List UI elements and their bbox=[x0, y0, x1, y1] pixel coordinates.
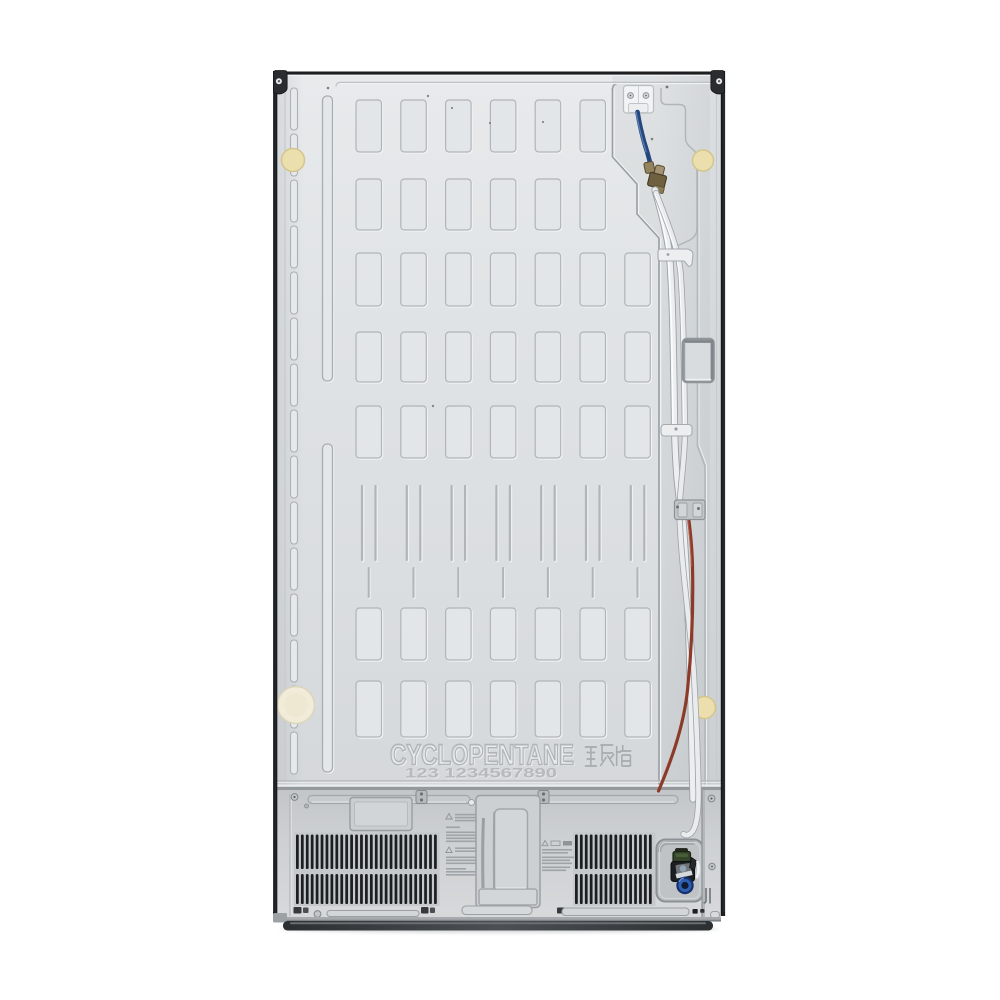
svg-text:123 1234567890: 123 1234567890 bbox=[405, 766, 557, 781]
